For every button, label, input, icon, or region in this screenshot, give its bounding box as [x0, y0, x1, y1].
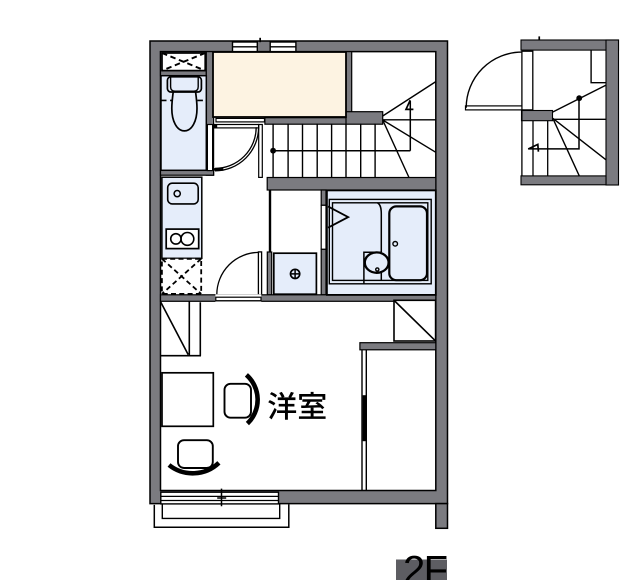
- svg-text:2F: 2F: [403, 549, 447, 580]
